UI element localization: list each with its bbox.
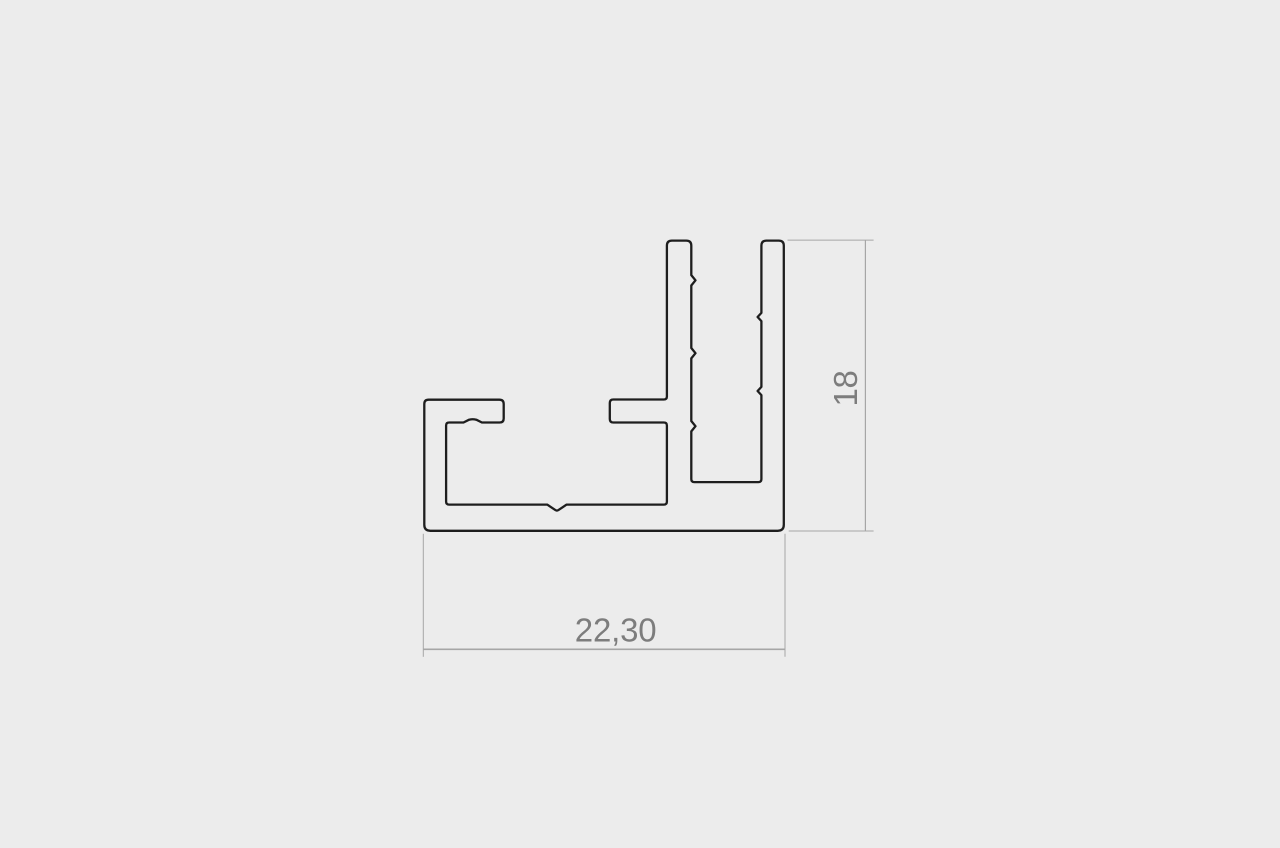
svg-text:18: 18 [827, 370, 864, 406]
svg-text:22,30: 22,30 [575, 611, 657, 648]
